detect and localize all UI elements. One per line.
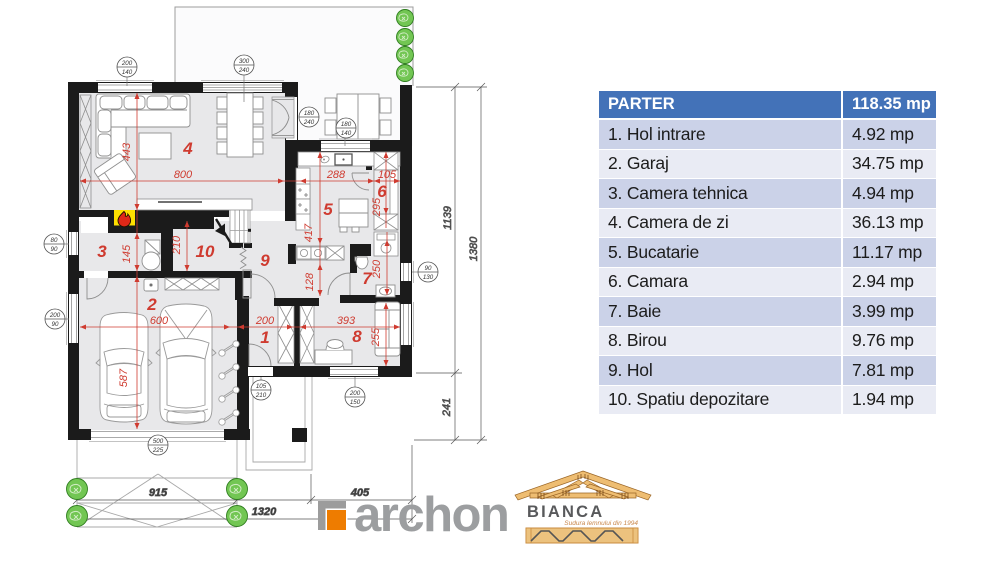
svg-text:90: 90 xyxy=(52,321,59,328)
svg-text:240: 240 xyxy=(303,119,315,126)
svg-text:1139: 1139 xyxy=(442,206,454,230)
svg-text:393: 393 xyxy=(337,315,356,327)
svg-text:1320: 1320 xyxy=(252,506,277,518)
svg-text:240: 240 xyxy=(238,67,250,74)
svg-text:105: 105 xyxy=(378,169,397,181)
svg-text:250: 250 xyxy=(371,259,383,279)
svg-text:587: 587 xyxy=(118,368,130,387)
svg-text:BIANCA: BIANCA xyxy=(527,503,604,521)
svg-text:180: 180 xyxy=(341,121,352,128)
svg-text:140: 140 xyxy=(341,130,352,137)
svg-text:1380: 1380 xyxy=(468,236,480,261)
svg-text:130: 130 xyxy=(423,274,434,281)
svg-text:90: 90 xyxy=(425,265,432,272)
svg-text:8: 8 xyxy=(352,327,362,346)
svg-text:200: 200 xyxy=(255,315,275,327)
svg-text:archon: archon xyxy=(354,488,508,542)
svg-text:105: 105 xyxy=(256,383,267,390)
svg-text:915: 915 xyxy=(149,487,168,499)
svg-text:288: 288 xyxy=(326,169,346,181)
svg-text:10: 10 xyxy=(196,242,215,261)
svg-text:500: 500 xyxy=(153,438,164,445)
svg-text:200: 200 xyxy=(349,390,361,397)
svg-text:180: 180 xyxy=(304,110,315,117)
svg-text:9: 9 xyxy=(260,251,270,270)
svg-text:600: 600 xyxy=(150,315,169,327)
svg-text:140: 140 xyxy=(122,69,133,76)
svg-text:210: 210 xyxy=(255,392,267,399)
svg-text:6: 6 xyxy=(377,182,387,201)
svg-text:90: 90 xyxy=(51,246,58,253)
svg-text:417: 417 xyxy=(303,223,315,242)
svg-text:1: 1 xyxy=(260,328,269,347)
svg-text:200: 200 xyxy=(121,60,133,67)
svg-text:80: 80 xyxy=(51,237,58,244)
svg-text:5: 5 xyxy=(323,200,333,219)
svg-text:145: 145 xyxy=(121,244,133,263)
svg-text:150: 150 xyxy=(350,399,361,406)
svg-text:210: 210 xyxy=(171,235,183,255)
svg-text:443: 443 xyxy=(121,142,133,161)
svg-text:200: 200 xyxy=(49,312,61,319)
svg-text:255: 255 xyxy=(370,327,382,347)
svg-text:128: 128 xyxy=(304,272,316,291)
svg-text:300: 300 xyxy=(239,58,250,65)
svg-text:7: 7 xyxy=(362,269,373,288)
svg-text:241: 241 xyxy=(441,398,453,417)
svg-text:Sudura lemnului din 1994: Sudura lemnului din 1994 xyxy=(564,520,638,527)
svg-text:4: 4 xyxy=(182,139,193,158)
svg-text:3: 3 xyxy=(97,242,107,261)
svg-text:800: 800 xyxy=(174,169,193,181)
svg-text:225: 225 xyxy=(152,447,164,454)
svg-text:2: 2 xyxy=(146,295,157,314)
